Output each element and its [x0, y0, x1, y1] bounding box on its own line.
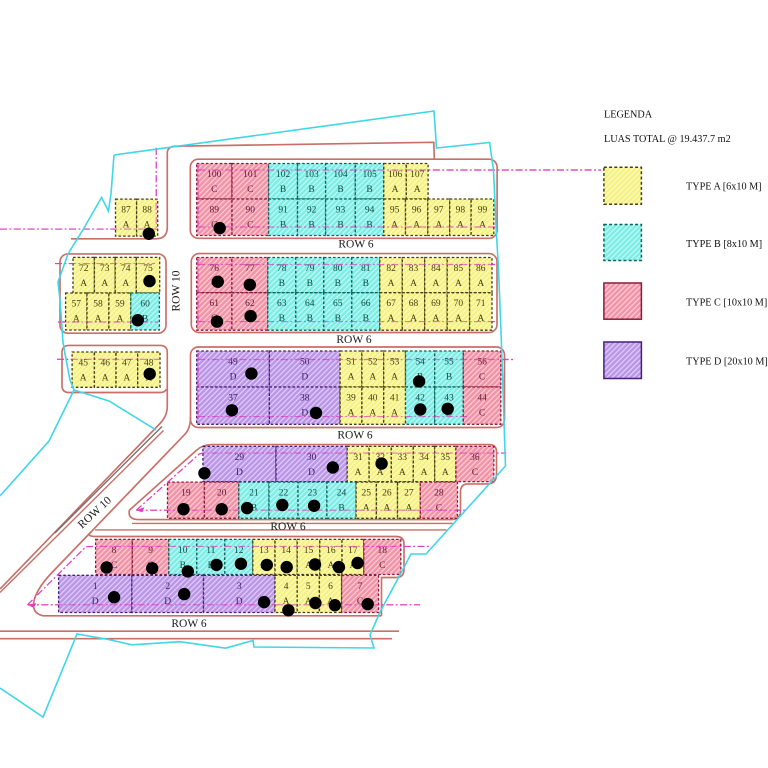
svg-text:TYPE D [20x10 M]: TYPE D [20x10 M] [686, 357, 768, 368]
svg-text:A: A [455, 314, 462, 324]
svg-text:D: D [236, 468, 243, 478]
svg-text:LEGENDA: LEGENDA [604, 110, 653, 121]
svg-text:96: 96 [412, 206, 422, 216]
svg-text:99: 99 [478, 206, 488, 216]
svg-text:66: 66 [361, 299, 371, 309]
svg-text:20: 20 [217, 489, 227, 499]
svg-text:103: 103 [304, 170, 319, 180]
svg-text:61: 61 [210, 299, 220, 309]
svg-text:17: 17 [348, 546, 358, 556]
svg-text:B: B [366, 221, 372, 231]
svg-text:95: 95 [390, 206, 400, 216]
svg-text:97: 97 [434, 206, 444, 216]
svg-text:A: A [348, 373, 355, 383]
svg-text:101: 101 [243, 170, 258, 180]
svg-text:B: B [280, 185, 286, 195]
svg-text:80: 80 [333, 264, 343, 274]
svg-text:104: 104 [333, 170, 348, 180]
svg-text:30: 30 [307, 453, 317, 463]
svg-text:45: 45 [78, 359, 88, 369]
svg-text:59: 59 [115, 300, 125, 310]
svg-text:TYPE B [8x10 M]: TYPE B [8x10 M] [686, 239, 762, 250]
svg-text:41: 41 [390, 394, 400, 404]
svg-text:57: 57 [72, 300, 82, 310]
svg-text:A: A [102, 374, 109, 384]
svg-text:A: A [123, 374, 130, 384]
svg-text:16: 16 [326, 546, 336, 556]
svg-text:71: 71 [476, 299, 486, 309]
svg-text:B: B [366, 185, 372, 195]
svg-text:40: 40 [368, 394, 378, 404]
svg-text:43: 43 [444, 394, 454, 404]
svg-text:B: B [308, 221, 314, 231]
svg-text:TYPE A [6x10 M]: TYPE A [6x10 M] [686, 182, 762, 193]
svg-text:91: 91 [278, 206, 288, 216]
svg-text:72: 72 [79, 264, 89, 274]
svg-text:B: B [280, 221, 286, 231]
svg-text:12: 12 [234, 546, 244, 556]
svg-text:69: 69 [431, 299, 441, 309]
svg-text:ROW 6: ROW 6 [336, 334, 371, 346]
svg-text:9: 9 [148, 546, 153, 556]
svg-text:A: A [413, 221, 420, 231]
svg-text:B: B [307, 314, 313, 324]
svg-text:ROW 6: ROW 6 [270, 521, 305, 533]
svg-text:B: B [338, 504, 344, 514]
svg-text:B: B [337, 185, 343, 195]
svg-text:A: A [73, 315, 80, 325]
svg-text:B: B [363, 279, 369, 289]
svg-text:A: A [391, 373, 398, 383]
svg-text:106: 106 [388, 170, 403, 180]
svg-text:A: A [435, 221, 442, 231]
svg-text:A: A [477, 279, 484, 289]
svg-text:C: C [472, 468, 478, 478]
svg-text:A: A [477, 314, 484, 324]
svg-text:10: 10 [178, 546, 188, 556]
svg-text:79: 79 [305, 264, 315, 274]
svg-text:ROW 6: ROW 6 [337, 430, 372, 442]
svg-text:TYPE C [10x10 M]: TYPE C [10x10 M] [686, 298, 767, 309]
svg-text:C: C [247, 221, 253, 231]
svg-text:29: 29 [235, 453, 245, 463]
svg-text:18: 18 [378, 546, 388, 556]
svg-text:A: A [457, 221, 464, 231]
svg-text:A: A [122, 279, 129, 289]
svg-text:60: 60 [140, 300, 150, 310]
svg-text:B: B [335, 314, 341, 324]
svg-text:6: 6 [328, 582, 333, 592]
svg-text:24: 24 [337, 489, 347, 499]
svg-text:A: A [410, 314, 417, 324]
svg-text:90: 90 [246, 206, 256, 216]
svg-text:86: 86 [476, 264, 486, 274]
svg-text:74: 74 [121, 264, 131, 274]
svg-text:A: A [80, 279, 87, 289]
svg-text:B: B [279, 314, 285, 324]
svg-text:63: 63 [277, 299, 287, 309]
svg-text:LUAS TOTAL @ 19.437.7 m2: LUAS TOTAL @ 19.437.7 m2 [604, 134, 731, 145]
svg-text:A: A [432, 279, 439, 289]
svg-text:107: 107 [410, 170, 425, 180]
svg-text:8: 8 [112, 546, 117, 556]
svg-text:42: 42 [415, 394, 425, 404]
svg-text:A: A [479, 221, 486, 231]
svg-text:22: 22 [279, 489, 289, 499]
svg-text:98: 98 [456, 206, 466, 216]
svg-text:48: 48 [144, 359, 154, 369]
svg-text:A: A [383, 504, 390, 514]
svg-text:15: 15 [304, 546, 314, 556]
svg-text:B: B [308, 185, 314, 195]
svg-text:31: 31 [353, 453, 363, 463]
svg-text:11: 11 [206, 546, 215, 556]
svg-text:4: 4 [284, 582, 289, 592]
svg-text:26: 26 [382, 489, 392, 499]
svg-text:C: C [247, 185, 253, 195]
svg-text:23: 23 [308, 489, 318, 499]
svg-text:75: 75 [143, 264, 153, 274]
svg-text:D: D [230, 373, 237, 383]
svg-text:C: C [479, 409, 485, 419]
svg-text:84: 84 [431, 264, 441, 274]
svg-text:39: 39 [346, 394, 356, 404]
svg-text:A: A [388, 314, 395, 324]
svg-text:77: 77 [245, 264, 255, 274]
svg-text:62: 62 [245, 299, 255, 309]
svg-text:81: 81 [361, 264, 371, 274]
svg-text:76: 76 [210, 264, 220, 274]
svg-text:A: A [455, 279, 462, 289]
svg-text:A: A [421, 468, 428, 478]
svg-text:C: C [436, 504, 442, 514]
svg-text:47: 47 [122, 359, 132, 369]
svg-text:94: 94 [365, 206, 375, 216]
svg-text:3: 3 [237, 582, 242, 592]
svg-text:82: 82 [386, 264, 396, 274]
svg-text:70: 70 [454, 299, 464, 309]
svg-text:ROW 6: ROW 6 [171, 618, 206, 630]
svg-text:44: 44 [477, 394, 487, 404]
svg-text:A: A [363, 504, 370, 514]
svg-text:89: 89 [210, 206, 220, 216]
svg-text:100: 100 [207, 170, 222, 180]
svg-text:B: B [363, 314, 369, 324]
svg-text:34: 34 [419, 453, 429, 463]
svg-text:A: A [410, 279, 417, 289]
svg-text:19: 19 [181, 489, 191, 499]
svg-text:B: B [337, 221, 343, 231]
svg-text:A: A [432, 314, 439, 324]
svg-text:D: D [301, 373, 308, 383]
svg-text:A: A [101, 279, 108, 289]
svg-text:7: 7 [358, 582, 363, 592]
svg-text:105: 105 [362, 170, 377, 180]
svg-text:78: 78 [277, 264, 287, 274]
svg-text:ROW 10: ROW 10 [171, 270, 183, 311]
svg-text:35: 35 [441, 453, 451, 463]
svg-text:38: 38 [300, 394, 310, 404]
svg-text:A: A [355, 468, 362, 478]
svg-text:14: 14 [281, 546, 291, 556]
svg-text:25: 25 [361, 489, 371, 499]
svg-text:65: 65 [333, 299, 343, 309]
svg-text:D: D [308, 468, 315, 478]
svg-text:A: A [399, 468, 406, 478]
svg-text:A: A [116, 315, 123, 325]
svg-text:B: B [279, 279, 285, 289]
svg-text:88: 88 [142, 206, 152, 216]
svg-text:92: 92 [307, 206, 317, 216]
svg-text:36: 36 [470, 453, 480, 463]
svg-text:B: B [307, 279, 313, 289]
svg-text:87: 87 [121, 206, 131, 216]
svg-text:21: 21 [249, 489, 259, 499]
svg-text:A: A [95, 315, 102, 325]
svg-text:1: 1 [93, 582, 98, 592]
svg-text:37: 37 [228, 394, 238, 404]
svg-text:83: 83 [409, 264, 419, 274]
svg-text:46: 46 [100, 359, 110, 369]
svg-text:A: A [392, 185, 399, 195]
svg-text:A: A [369, 373, 376, 383]
svg-text:C: C [211, 185, 217, 195]
svg-text:102: 102 [276, 170, 291, 180]
svg-text:58: 58 [93, 300, 103, 310]
svg-text:5: 5 [306, 582, 311, 592]
svg-text:A: A [388, 279, 395, 289]
svg-text:33: 33 [398, 453, 408, 463]
svg-text:93: 93 [336, 206, 346, 216]
svg-text:67: 67 [386, 299, 396, 309]
svg-text:68: 68 [409, 299, 419, 309]
svg-text:B: B [335, 279, 341, 289]
svg-text:A: A [414, 185, 421, 195]
svg-text:A: A [442, 468, 449, 478]
svg-text:28: 28 [434, 489, 444, 499]
svg-text:A: A [80, 374, 87, 384]
svg-text:C: C [379, 561, 385, 571]
svg-text:13: 13 [259, 546, 269, 556]
svg-text:ROW 6: ROW 6 [338, 239, 373, 251]
svg-text:A: A [391, 221, 398, 231]
svg-text:2: 2 [165, 582, 170, 592]
svg-text:C: C [479, 373, 485, 383]
svg-text:73: 73 [100, 264, 110, 274]
svg-text:A: A [405, 504, 412, 514]
svg-text:85: 85 [454, 264, 464, 274]
svg-text:B: B [446, 373, 452, 383]
svg-text:27: 27 [404, 489, 414, 499]
svg-text:64: 64 [305, 299, 315, 309]
